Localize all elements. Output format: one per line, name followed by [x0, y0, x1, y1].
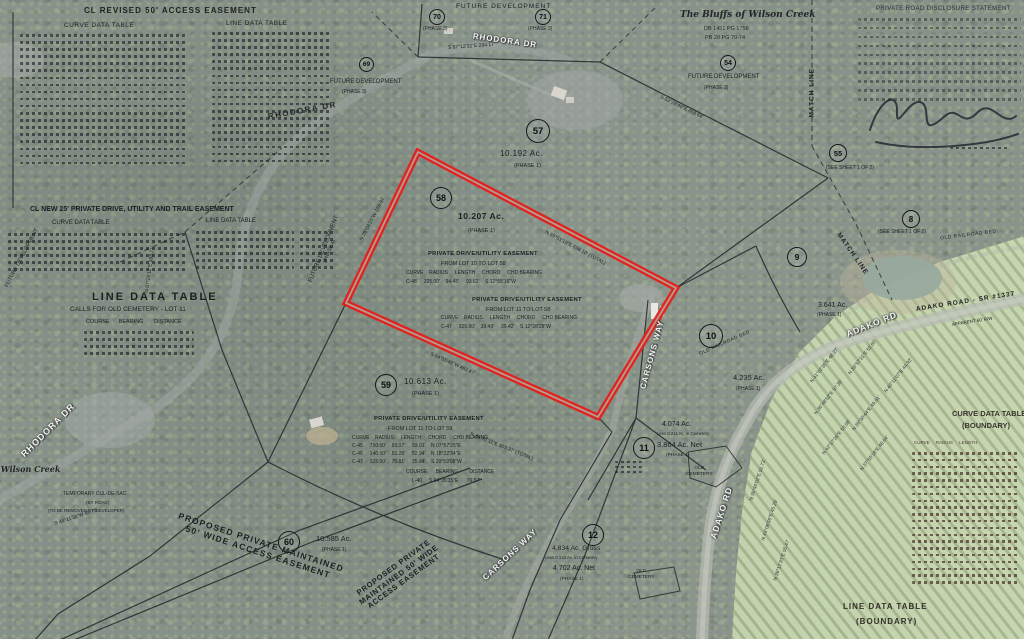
old-cemetery-label-1: OLD CEMETERY — [686, 466, 713, 477]
lot-58-circle: 58 — [430, 187, 452, 209]
easement-11-58-title: PRIVATE DRIVE/UTILITY EASEMENT — [472, 297, 582, 304]
lot-59-phase: (PHASE 1) — [412, 391, 439, 397]
line-table-boundary-subtitle: (BOUNDARY) — [856, 617, 917, 626]
future-dev-topcenter: FUTURE DEVELOPMENT — [456, 3, 551, 10]
easement-11-59-from: FROM LOT 11 TO LOT 59 — [388, 426, 452, 432]
curve-table-boundary-title: CURVE DATA TABLE — [952, 410, 1024, 419]
subdivision-plat-ref: PB 20 PG 70-74 — [705, 35, 745, 41]
line-table-rows-illegible — [212, 32, 332, 167]
future-dev-topright: FUTURE DEVELOPMENT — [688, 74, 759, 81]
lot-11-circle: 11 — [633, 437, 655, 459]
easement-11-59-row2: C-46 140.00' 53.26' 52.94' N 18°22'34"E — [352, 452, 461, 458]
easement-11-59-row3: C-47 325.00' 75.81' 75.64' S 20°59'08"W — [352, 460, 462, 466]
course-bearing-distance-header: COURSE BEARING DISTANCE — [86, 319, 182, 325]
lot-10-acreage: 4.235 Ac. — [733, 374, 764, 383]
lot-70-phase: (PHASE 3) — [423, 27, 447, 33]
lot-71-circle: 71 — [535, 9, 551, 25]
lot-70-circle: 70 — [429, 9, 445, 25]
line-data-table-title-2: LINE DATA TABLE — [206, 218, 256, 225]
lot-69-circle: 69 — [359, 57, 374, 72]
plat-map-image[interactable]: CL REVISED 50' ACCESS EASEMENT CURVE DAT… — [0, 0, 1024, 639]
pond — [862, 256, 942, 300]
subdivision-deed-ref: DB 1451 PG 1756 — [704, 26, 749, 32]
line-data-table-title-1: LINE DATA TABLE — [226, 20, 288, 27]
lot-12-circle: 12 — [582, 524, 604, 546]
private-road-disclosure-title: PRIVATE ROAD DISCLOSURE STATEMENT — [876, 6, 1011, 13]
lot-11-net: 3.864 Ac. Net — [657, 441, 702, 450]
easement-10-58-title: PRIVATE DRIVE/UTILITY EASEMENT — [428, 251, 538, 258]
easement-11-59-cols: CURVE RADIUS LENGTH CHORD CHD BEARING — [352, 436, 488, 442]
lot-9-circle: 9 — [787, 247, 807, 267]
lot-57-phase: (PHASE 1) — [514, 163, 541, 169]
curve-table-boundary-rows-illegible — [912, 452, 1018, 588]
lot-55-circle: 55 — [829, 144, 847, 162]
curve-data-table-title-1: CURVE DATA TABLE — [64, 22, 134, 29]
old-cemetery-label-2: OLD CEMETERY — [628, 569, 655, 580]
lot-11-gross: 4.074 Ac. — [662, 421, 691, 429]
lot-54-circle: 54 — [720, 55, 736, 71]
easement-11-58-from: FROM LOT 11 TO LOT 58 — [486, 307, 550, 313]
cemetery-calls-subtitle: CALLS FOR OLD CEMETERY - LOT 11 — [70, 306, 186, 313]
easement-11-59-cols2: COURSE BEARING DISTANCE — [406, 470, 494, 476]
lot-60-acreage: 10.585 Ac. — [316, 535, 351, 544]
subdivision-name-fragment: The Bluffs of Wilson Creek — [0, 465, 60, 474]
temp-culdesac-line1: TEMPORARY CUL-DE-SAC — [63, 492, 126, 498]
temp-culdesac-line2: (BY ROAD) — [86, 500, 109, 505]
lot-9-acreage: 3.641 Ac. — [818, 302, 847, 310]
lot-59-acreage: 10.613 Ac. — [404, 377, 447, 386]
easement-11-59-row1: C-45 750.00' 93.07' 93.01' N 07°57'25"E — [352, 444, 461, 450]
easement-11-58-row: C-47 325.00' 39.49' 39.42' S 12°28'28"W — [441, 325, 551, 331]
easement-10-58-row: C-48 325.00' 94.45' 93.62' S 12°55'16"W — [406, 280, 516, 286]
line-table-boundary-title: LINE DATA TABLE — [843, 602, 927, 611]
easement-10-58-cols: CURVE RADIUS LENGTH CHORD CHD BEARING — [406, 271, 542, 277]
lot-12-gross: 4.834 Ac. Gross — [552, 545, 600, 553]
subdivision-name: The Bluffs of Wilson Creek — [680, 10, 815, 20]
line-table2-rows-illegible — [196, 231, 294, 274]
future-dev-topmid: FUTURE DEVELOPMENT — [330, 79, 401, 86]
curve-table-rows-illegible — [20, 34, 186, 169]
new-25-easement-title: CL NEW 25' PRIVATE DRIVE, UTILITY AND TR… — [30, 206, 234, 214]
future-dev-topright-phase: (PHASE 3) — [704, 86, 728, 92]
lot-12-net: 4.702 Ac. Net — [553, 565, 595, 573]
see-sheet-note-1: (SEE SHEET 1 OF 2) — [826, 166, 874, 172]
lot-59-circle: 59 — [375, 374, 397, 396]
lot-60-phase: (PHASE 1) — [322, 548, 346, 554]
lot-58-phase: (PHASE 1) — [468, 228, 495, 234]
curve-table-boundary-subtitle: (BOUNDARY) — [962, 422, 1010, 431]
curve-table-boundary-cols: CURVE RADIUS LENGTH — [914, 440, 977, 445]
lot-11-phase: (PHASE 1) — [666, 453, 689, 459]
lot-57-acreage: 10.192 Ac. — [500, 149, 543, 158]
easement-11-59-title: PRIVATE DRIVE/UTILITY EASEMENT — [374, 416, 484, 423]
old-cemetery-2-line2: CEMETERY — [628, 575, 655, 581]
lot-11-less: Less 0.211 Ac. in Cemetery — [657, 432, 709, 437]
existing-row-note-illegible — [615, 461, 642, 476]
lot-12-less: Less 0.132 Ac. in Cemetery — [545, 556, 598, 561]
lot-12-phase: (PHASE 1) — [560, 577, 583, 583]
cemetery-table-rows-illegible — [84, 331, 194, 359]
easement-10-58-from: FROM LOT 10 TO LOT 58 — [441, 261, 506, 267]
lot-58-acreage: 10.207 Ac. — [458, 212, 504, 222]
revised-access-easement-title: CL REVISED 50' ACCESS EASEMENT — [84, 6, 257, 15]
disclosure-paragraph-illegible — [858, 18, 1021, 107]
lot-71-phase: (PHASE 3) — [528, 27, 552, 33]
easement-11-59-row4: L-40 S 64°35'35"E 76.57' — [412, 479, 480, 485]
old-cemetery-1-line2: CEMETERY — [686, 472, 713, 478]
lot-9-phase: (PHASE 1) — [817, 313, 841, 319]
signature-caption-illegible — [950, 147, 1008, 152]
subdivision-deed-fragment: DB 1451 PG 1756 — [0, 479, 1, 485]
see-sheet-note-2: (SEE SHEET 1 OF 2) — [878, 230, 926, 236]
future-dev-topmid-phase: (PHASE 3) — [342, 90, 366, 96]
lot-10-phase: (PHASE 1) — [736, 387, 760, 393]
match-line-label-top: MATCH LINE — [808, 58, 815, 128]
lot-8-circle: 8 — [902, 210, 920, 228]
easement-11-58-cols: CURVE RADIUS LENGTH CHORD CHD BEARING — [441, 316, 577, 322]
lot-57-circle: 57 — [526, 119, 550, 143]
line-data-table-big-title: LINE DATA TABLE — [92, 291, 218, 304]
curve-data-table-title-2: CURVE DATA TABLE — [52, 220, 109, 227]
temp-culdesac-line3: (TO BE REMOVED BY DEVELOPER) — [48, 508, 124, 513]
